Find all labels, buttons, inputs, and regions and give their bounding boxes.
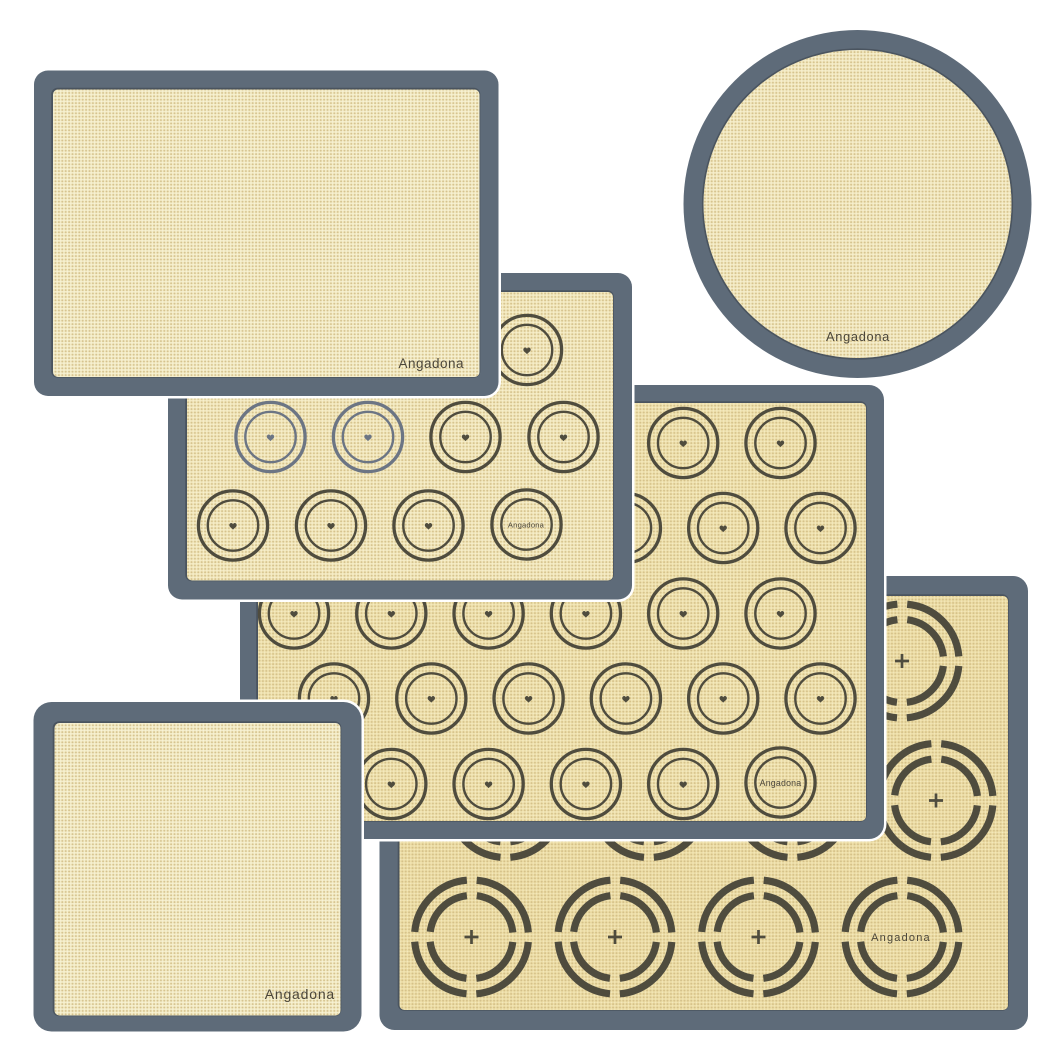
svg-text:Angadona: Angadona <box>265 986 335 1002</box>
svg-text:Angadona: Angadona <box>871 932 931 944</box>
svg-text:Angadona: Angadona <box>760 778 802 788</box>
svg-text:Angadona: Angadona <box>398 356 464 371</box>
svg-text:Angadona: Angadona <box>508 521 545 530</box>
svg-text:Angadona: Angadona <box>826 329 890 344</box>
